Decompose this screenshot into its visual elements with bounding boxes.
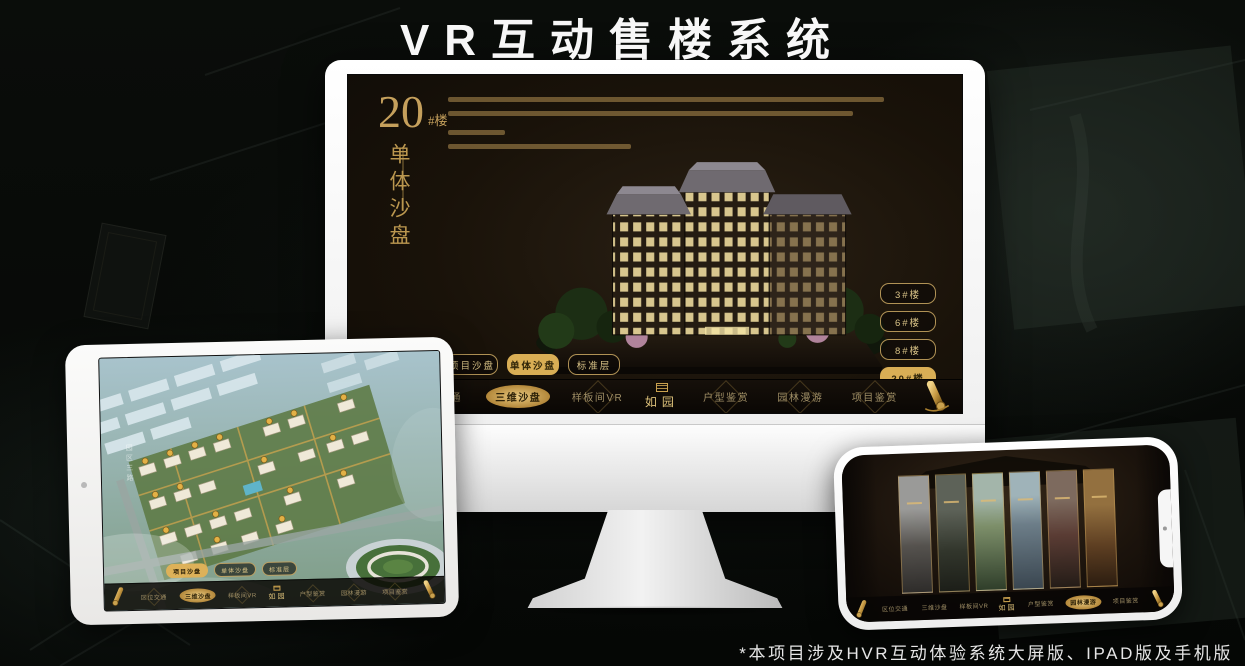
nav-item-unit-plans[interactable]: 户型鉴赏 bbox=[699, 380, 753, 413]
gallery-card[interactable] bbox=[1046, 470, 1081, 589]
nav-item-garden-roam[interactable]: 园林漫游 bbox=[773, 380, 827, 413]
footnote-text: *本项目涉及HVR互动体验系统大屏版、IPAD版及手机版 bbox=[739, 639, 1233, 664]
nav-item-3d-sandbox[interactable]: 三维沙盘 bbox=[919, 594, 950, 620]
nav-item-showroom-vr[interactable]: 样板间VR bbox=[227, 581, 258, 608]
ipad-tab-group: 项目沙盘 单体沙盘 标准层 bbox=[166, 561, 297, 578]
scene-gallery bbox=[898, 468, 1118, 593]
tab-single-sandbox[interactable]: 单体沙盘 bbox=[507, 354, 559, 375]
building-headline: 20 #楼 单体沙盘 bbox=[378, 89, 448, 251]
phone-notch bbox=[1158, 489, 1175, 567]
floor-button-3[interactable]: 3#楼 bbox=[880, 283, 936, 304]
headline-subtitle: 单体沙盘 bbox=[384, 143, 414, 251]
nav-item-garden-roam[interactable]: 园林漫游 bbox=[1065, 589, 1102, 615]
scroll-handle-icon[interactable] bbox=[110, 587, 127, 607]
scroll-handle-icon[interactable] bbox=[421, 580, 438, 600]
gallery-card[interactable] bbox=[1083, 468, 1118, 587]
ipad-screen[interactable]: 园区三路 项目沙盘 单体沙盘 标准层 区位交通 三维沙盘 样板间VR bbox=[98, 350, 446, 612]
gallery-card[interactable] bbox=[935, 473, 970, 592]
floor-button-group: 3#楼 6#楼 8#楼 20#楼 bbox=[880, 283, 936, 388]
seal-icon bbox=[1004, 596, 1011, 601]
phone-screen[interactable]: 区位交通 三维沙盘 样板间VR 如园 户型鉴赏 园林漫游 项目鉴赏 bbox=[841, 444, 1175, 622]
tab-single-sandbox[interactable]: 单体沙盘 bbox=[214, 562, 256, 577]
nav-item-project-view[interactable]: 项目鉴赏 bbox=[1110, 587, 1141, 613]
nav-item-project-view[interactable]: 项目鉴赏 bbox=[380, 578, 411, 605]
tab-project-sandbox[interactable]: 项目沙盘 bbox=[446, 354, 498, 375]
tab-standard-floor[interactable]: 标准层 bbox=[568, 354, 620, 375]
gallery-card[interactable] bbox=[972, 472, 1007, 591]
nav-item-project-view[interactable]: 项目鉴赏 bbox=[848, 380, 902, 413]
gallery-card[interactable] bbox=[898, 475, 933, 594]
nav-item-location[interactable]: 区位交通 bbox=[880, 595, 911, 621]
page-title: VR互动售楼系统 bbox=[0, 4, 1245, 68]
monitor-shadow bbox=[530, 606, 780, 616]
ipad-device: 园区三路 项目沙盘 单体沙盘 标准层 区位交通 三维沙盘 样板间VR bbox=[65, 337, 459, 626]
floor-button-6[interactable]: 6#楼 bbox=[880, 311, 936, 332]
seal-icon bbox=[274, 586, 281, 591]
tab-project-sandbox[interactable]: 项目沙盘 bbox=[166, 563, 208, 578]
road-label: 园区三路 bbox=[123, 444, 134, 484]
nav-item-showroom-vr[interactable]: 样板间VR bbox=[959, 593, 990, 619]
stage: VR互动售楼系统 20 #楼 单体沙盘 bbox=[0, 0, 1245, 666]
nav-item-showroom-vr[interactable]: 样板间VR bbox=[571, 380, 625, 413]
scroll-handle-icon[interactable] bbox=[922, 381, 952, 413]
brand-logo: 如园 bbox=[645, 383, 679, 410]
seal-icon bbox=[656, 383, 668, 392]
brand-logo: 如园 bbox=[268, 585, 286, 601]
tab-standard-floor[interactable]: 标准层 bbox=[262, 561, 297, 576]
building-model[interactable] bbox=[486, 127, 938, 385]
scroll-handle-icon[interactable] bbox=[1150, 590, 1167, 610]
nav-item-3d-sandbox[interactable]: 三维沙盘 bbox=[486, 380, 550, 413]
headline-number: 20 bbox=[378, 89, 424, 135]
nav-item-unit-plans[interactable]: 户型鉴赏 bbox=[1025, 590, 1056, 616]
nav-item-garden-roam[interactable]: 园林漫游 bbox=[339, 579, 370, 606]
phone-device: 区位交通 三维沙盘 样板间VR 如园 户型鉴赏 园林漫游 项目鉴赏 bbox=[833, 436, 1183, 631]
gallery-card[interactable] bbox=[1009, 471, 1044, 590]
nav-item-3d-sandbox[interactable]: 三维沙盘 bbox=[180, 582, 217, 609]
scroll-handle-icon[interactable] bbox=[854, 600, 871, 620]
brand-logo: 如园 bbox=[998, 596, 1017, 613]
sandbox-tab-group: 项目沙盘 单体沙盘 标准层 bbox=[446, 354, 620, 375]
headline-rule bbox=[402, 147, 404, 211]
nav-item-location[interactable]: 区位交通 bbox=[139, 583, 170, 610]
floor-button-8[interactable]: 8#楼 bbox=[880, 339, 936, 360]
nav-item-unit-plans[interactable]: 户型鉴赏 bbox=[297, 580, 328, 607]
ipad-camera-icon bbox=[81, 482, 87, 488]
phone-bottom-navbar: 区位交通 三维沙盘 样板间VR 如园 户型鉴赏 园林漫游 项目鉴赏 bbox=[846, 586, 1175, 622]
headline-unit: #楼 bbox=[428, 110, 448, 135]
